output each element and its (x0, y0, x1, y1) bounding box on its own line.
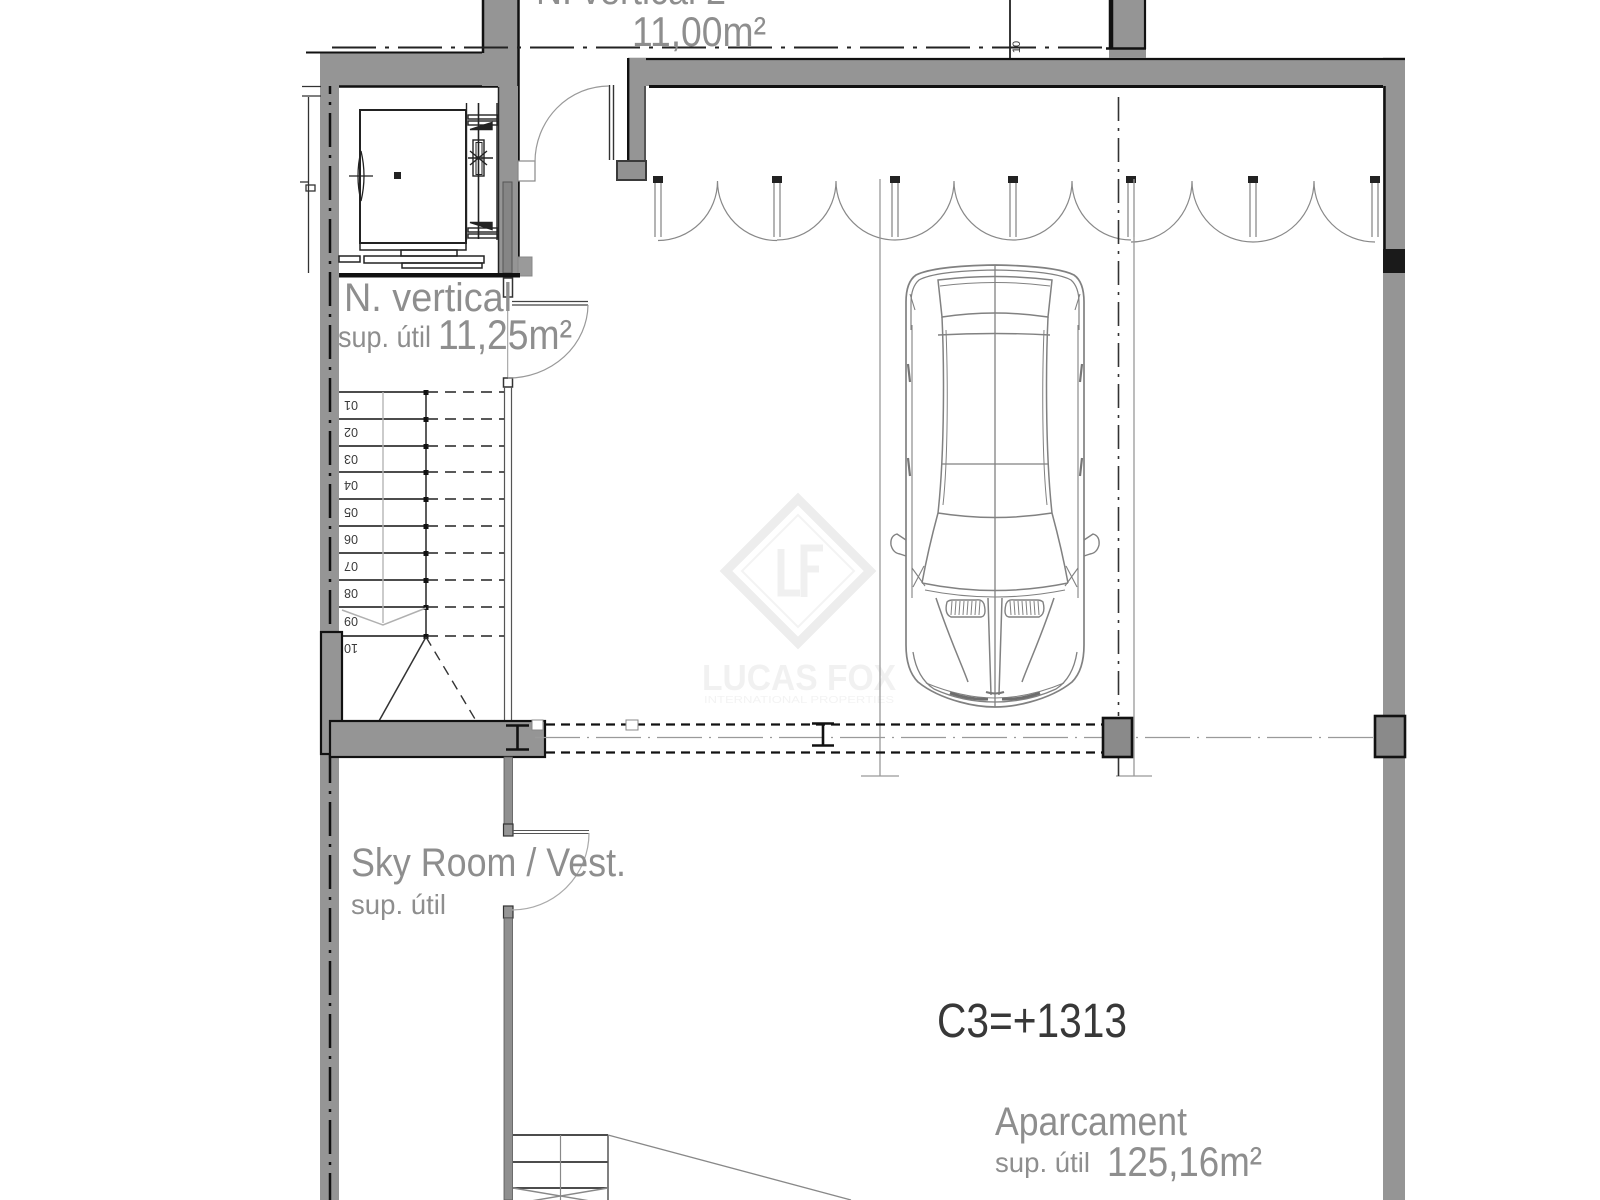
svg-text:11,00m²: 11,00m² (632, 8, 766, 55)
svg-text:11,25m²: 11,25m² (438, 311, 572, 358)
svg-text:125,16m²: 125,16m² (1107, 1138, 1262, 1185)
svg-text:sup. útil: sup. útil (995, 1147, 1090, 1178)
svg-text:INTERNATIONAL PROPERTIES: INTERNATIONAL PROPERTIES (704, 694, 894, 706)
svg-text:sup. útil: sup. útil (338, 321, 431, 354)
svg-text:06: 06 (344, 532, 358, 546)
svg-text:04: 04 (344, 478, 358, 492)
svg-text:08: 08 (344, 586, 358, 600)
svg-text:05: 05 (344, 505, 358, 519)
svg-text:01: 01 (344, 398, 358, 412)
svg-text:Sky Room / Vest.: Sky Room / Vest. (351, 841, 626, 885)
svg-text:02: 02 (344, 425, 358, 439)
svg-text:09: 09 (344, 614, 358, 628)
svg-text:10: 10 (1011, 41, 1023, 53)
svg-text:C3=+1313: C3=+1313 (937, 995, 1127, 1048)
svg-text:sup. útil: sup. útil (351, 889, 446, 920)
svg-text:03: 03 (344, 452, 358, 466)
svg-text:07: 07 (344, 559, 358, 573)
svg-text:LUCAS FOX: LUCAS FOX (702, 657, 896, 698)
svg-text:10: 10 (344, 641, 358, 655)
